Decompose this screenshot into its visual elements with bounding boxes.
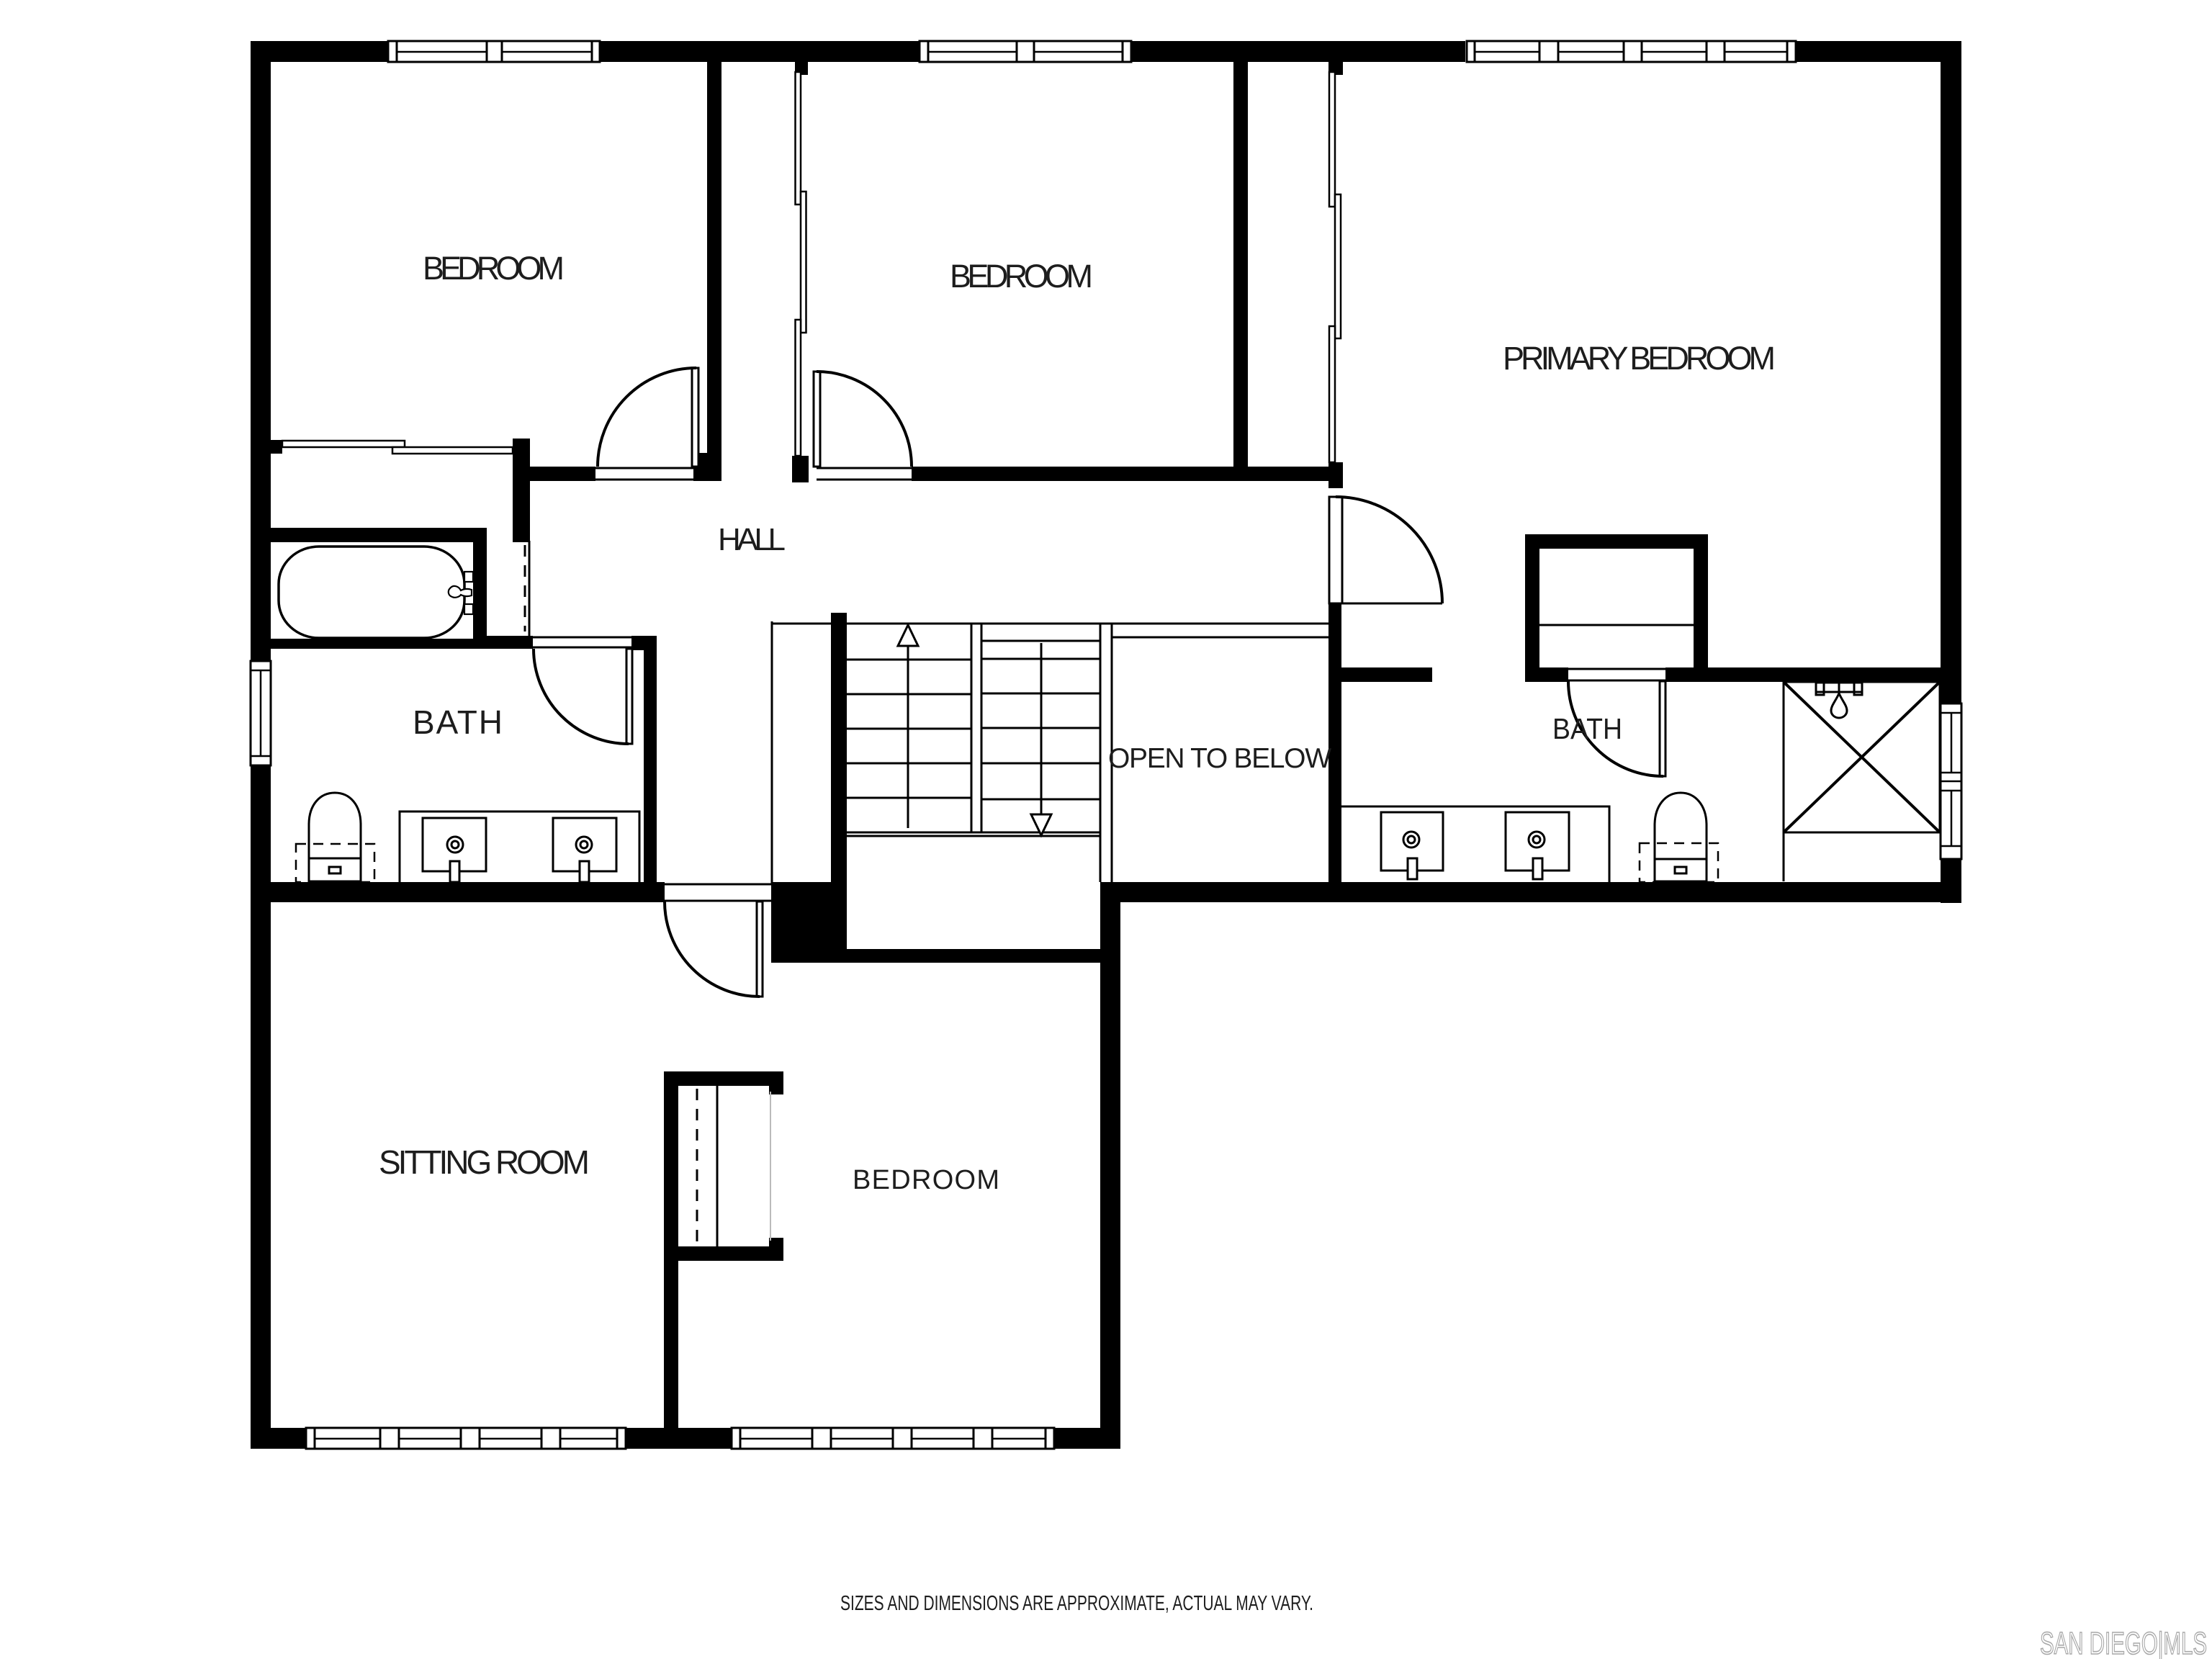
svg-text:SAN DIEGO|MLS: SAN DIEGO|MLS	[2040, 1626, 2207, 1659]
svg-text:SIZES AND DIMENSIONS ARE APPRO: SIZES AND DIMENSIONS ARE APPROXIMATE, AC…	[840, 1592, 1313, 1615]
svg-text:SITTING ROOM: SITTING ROOM	[379, 1143, 590, 1181]
svg-text:HALL: HALL	[718, 522, 786, 557]
svg-text:BATH: BATH	[413, 703, 503, 741]
svg-text:PRIMARY BEDROOM: PRIMARY BEDROOM	[1503, 340, 1776, 377]
svg-text:BEDROOM: BEDROOM	[423, 250, 565, 287]
svg-text:BATH: BATH	[1552, 712, 1622, 745]
svg-text:BEDROOM: BEDROOM	[853, 1165, 999, 1195]
svg-text:BEDROOM: BEDROOM	[950, 258, 1093, 295]
svg-text:OPEN TO BELOW: OPEN TO BELOW	[1108, 743, 1331, 774]
